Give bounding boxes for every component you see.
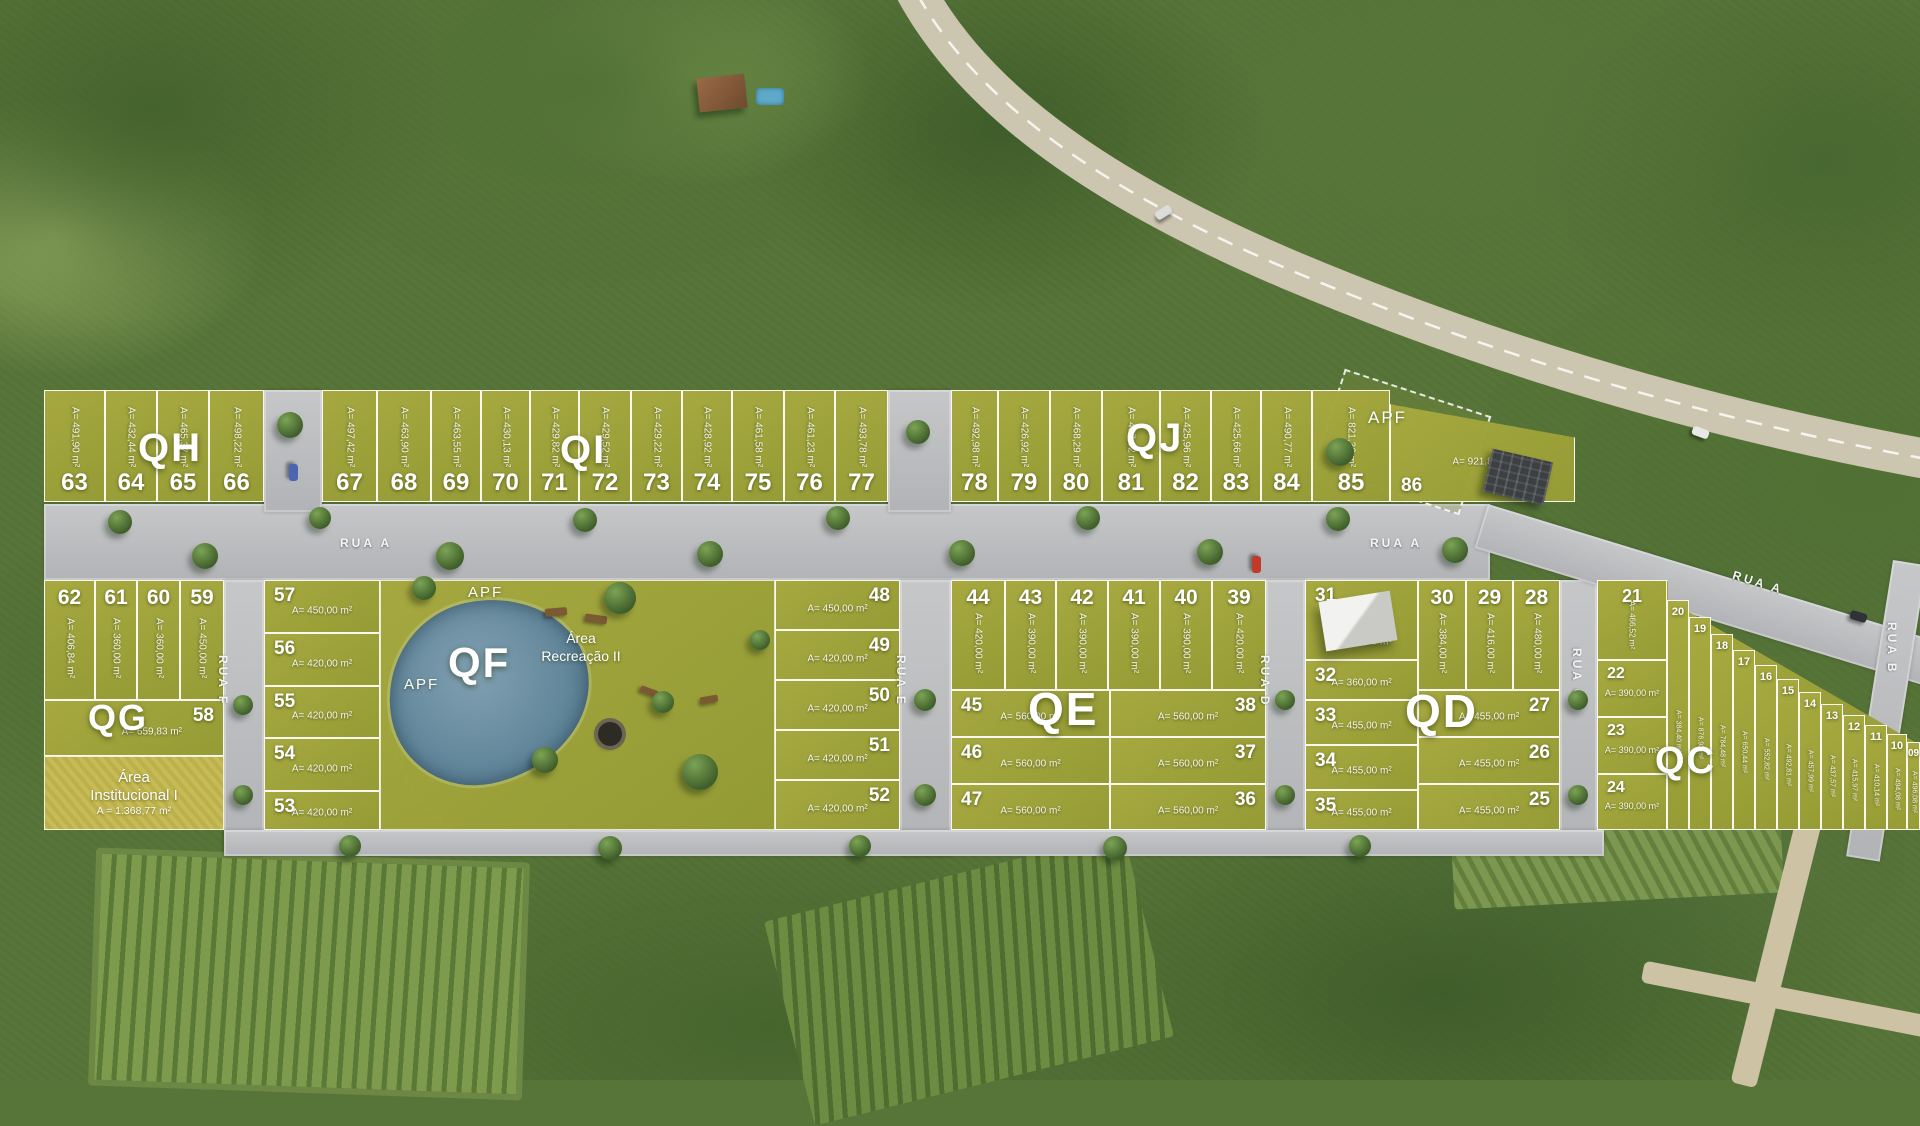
lot-17-area: A= 650,44 m²	[1741, 731, 1748, 773]
lot-54: 54A= 420,00 m²	[264, 738, 380, 791]
lot-69-number: 69	[443, 471, 470, 495]
lot-26-number: 26	[1529, 743, 1550, 762]
lot-76-number: 76	[796, 471, 823, 495]
fire-pit	[598, 722, 622, 746]
road-rua-d-road	[1266, 580, 1305, 856]
lot-44: 44A= 420,00 m²	[951, 580, 1005, 690]
lot-23-area: A= 390,00 m²	[1605, 745, 1659, 755]
lot-75: 75A= 461,58 m²	[732, 390, 784, 502]
lot-21-area: A= 466,52 m²	[1628, 601, 1637, 649]
tree	[914, 784, 936, 806]
lot-09: 09A= 496,08 m²	[1907, 742, 1920, 830]
block-label-qd: QD	[1405, 688, 1478, 734]
lot-22-number: 22	[1607, 666, 1625, 682]
lot-70-area: A= 430,13 m²	[500, 407, 511, 467]
lot-29: 29A= 416,00 m²	[1466, 580, 1513, 690]
tree	[339, 835, 361, 857]
street-label-rua-e: RUA E	[894, 655, 908, 707]
tree	[233, 785, 253, 805]
lot-70: 70A= 430,13 m²	[481, 390, 530, 502]
tree	[914, 689, 936, 711]
lot-83-number: 83	[1223, 471, 1250, 495]
tree	[436, 542, 464, 570]
lot-84-area: A= 490,77 m²	[1281, 407, 1292, 467]
lot-52-area: A= 420,00 m²	[807, 803, 867, 814]
lot-16-number: 16	[1760, 672, 1772, 683]
lot-63-area: A= 491,90 m²	[69, 407, 80, 467]
lot-60-number: 60	[147, 587, 170, 608]
street-label-rua-b: RUA B	[1885, 622, 1899, 675]
lot-83: 83A= 425,66 m²	[1211, 390, 1261, 502]
masterplan-aerial-map: APF APF APF Área Recreação II Área Insti…	[0, 0, 1920, 1080]
lot-11-number: 11	[1870, 732, 1882, 743]
lot-55-area: A= 420,00 m²	[292, 711, 352, 722]
tree	[1275, 785, 1295, 805]
lot-67-area: A= 497,42 m²	[344, 407, 355, 467]
block-label-qc: QC	[1655, 742, 1716, 780]
lot-10: 10A= 494,08 m²	[1887, 734, 1907, 830]
lot-79-area: A= 426,92 m²	[1019, 407, 1030, 467]
road-cross-top-1	[264, 390, 322, 512]
lot-24-area: A= 390,00 m²	[1605, 801, 1659, 811]
lot-57-area: A= 450,00 m²	[292, 605, 352, 616]
lot-11: 11A= 410,14 m²	[1865, 725, 1887, 830]
lot-84: 84A= 490,77 m²	[1261, 390, 1312, 502]
lot-78-area: A= 492,98 m²	[969, 407, 980, 467]
road-rua-c-road	[1560, 580, 1597, 856]
street-label-rua-a-1: RUA A	[340, 536, 392, 550]
lot-12-area: A= 415,97 m²	[1851, 759, 1858, 801]
lot-84-number: 84	[1273, 471, 1300, 495]
lot-27-number: 27	[1529, 696, 1550, 715]
block-label-qg: QG	[88, 700, 148, 736]
lot-14-number: 14	[1804, 699, 1816, 710]
tree	[108, 510, 132, 534]
tree	[652, 691, 674, 713]
tree	[1275, 690, 1295, 710]
lot-28-area: A= 480,00 m²	[1531, 612, 1542, 672]
tree	[573, 508, 597, 532]
lot-85-number: 85	[1338, 471, 1365, 495]
road-rua-a	[44, 504, 1490, 580]
lot-20-number: 20	[1672, 607, 1684, 618]
road-rua-f-road	[224, 580, 264, 856]
lot-35: 35A= 455,00 m²	[1305, 790, 1418, 830]
lot-79-number: 79	[1011, 471, 1038, 495]
lot-48: 48A= 450,00 m²	[775, 580, 900, 630]
lot-86-number: 86	[1401, 476, 1422, 495]
tree	[697, 541, 723, 567]
lot-58-number: 58	[193, 706, 214, 725]
lot-68: 68A= 463,90 m²	[377, 390, 431, 502]
road-bottom-road	[224, 830, 1604, 856]
lot-36-number: 36	[1235, 790, 1256, 809]
lot-38-area: A= 560,00 m²	[1158, 712, 1218, 723]
recreation-area-label: Área Recreação II	[516, 630, 646, 665]
road-cross-top-2	[888, 390, 951, 512]
institutional-area-size: A = 1.368,77 m²	[44, 805, 224, 817]
apf-label-top: APF	[1368, 408, 1407, 428]
lot-62: 62A= 406,84 m²	[44, 580, 95, 700]
lot-49: 49A= 420,00 m²	[775, 630, 900, 680]
block-label-qj: QJ	[1126, 418, 1183, 458]
lot-16-area: A= 552,82 m²	[1763, 738, 1770, 780]
lot-65-number: 65	[170, 471, 197, 495]
tree	[192, 543, 218, 569]
lot-17: 17A= 650,44 m²	[1733, 650, 1755, 830]
lot-25-area: A= 455,00 m²	[1459, 805, 1519, 816]
lot-63-number: 63	[61, 471, 88, 495]
lot-24-number: 24	[1607, 780, 1625, 796]
tree	[1349, 835, 1371, 857]
lot-70-number: 70	[492, 471, 519, 495]
lot-50: 50A= 420,00 m²	[775, 680, 900, 730]
lot-60: 60A= 360,00 m²	[137, 580, 180, 700]
lot-33: 33A= 455,00 m²	[1305, 700, 1418, 745]
lot-73-number: 73	[643, 471, 670, 495]
lot-48-number: 48	[869, 586, 890, 605]
lot-47-number: 47	[961, 790, 982, 809]
lot-74-number: 74	[694, 471, 721, 495]
lot-22: 22A= 390,00 m²	[1597, 660, 1667, 717]
street-label-rua-d: RUA D	[1258, 655, 1272, 708]
lot-61-number: 61	[104, 587, 127, 608]
lot-51-area: A= 420,00 m²	[807, 753, 867, 764]
lot-42-number: 42	[1070, 587, 1093, 608]
lot-62-number: 62	[58, 587, 81, 608]
lot-33-area: A= 455,00 m²	[1331, 720, 1391, 731]
lot-51-number: 51	[869, 736, 890, 755]
lot-17-number: 17	[1738, 657, 1750, 668]
lot-24: 24A= 390,00 m²	[1597, 774, 1667, 830]
lot-54-number: 54	[274, 744, 295, 763]
lot-12-number: 12	[1848, 722, 1860, 733]
lot-73-area: A= 429,22 m²	[651, 407, 662, 467]
lot-52-number: 52	[869, 786, 890, 805]
swimming-pool	[756, 88, 784, 105]
lot-13: 13A= 437,57 m²	[1821, 704, 1843, 830]
lot-29-area: A= 416,00 m²	[1484, 612, 1495, 672]
lot-74: 74A= 428,92 m²	[682, 390, 732, 502]
tree	[1442, 537, 1468, 563]
lot-41-area: A= 390,00 m²	[1129, 612, 1140, 672]
lot-49-area: A= 420,00 m²	[807, 653, 867, 664]
lot-19-number: 19	[1694, 624, 1706, 635]
lot-51: 51A= 420,00 m²	[775, 730, 900, 780]
lot-43: 43A= 390,00 m²	[1005, 580, 1056, 690]
lot-78: 78A= 492,98 m²	[951, 390, 998, 502]
lot-77: 77A= 493,78 m²	[835, 390, 888, 502]
lot-71-number: 71	[541, 471, 568, 495]
lot-62-area: A= 406,84 m²	[64, 618, 75, 678]
lot-56-number: 56	[274, 639, 295, 658]
lot-76: 76A= 461,23 m²	[784, 390, 835, 502]
street-label-rua-a-2: RUA A	[1370, 536, 1422, 550]
tree	[1568, 690, 1588, 710]
lot-56-area: A= 420,00 m²	[292, 658, 352, 669]
lot-42-area: A= 390,00 m²	[1077, 612, 1088, 672]
lot-78-number: 78	[961, 471, 988, 495]
block-label-qh: QH	[138, 428, 202, 468]
lot-66: 66A= 498,22 m²	[209, 390, 264, 502]
lot-60-area: A= 360,00 m²	[153, 618, 164, 678]
lot-50-number: 50	[869, 686, 890, 705]
tree	[1326, 507, 1350, 531]
lot-34-area: A= 455,00 m²	[1331, 765, 1391, 776]
lot-66-area: A= 498,22 m²	[231, 407, 242, 467]
lot-45-number: 45	[961, 696, 982, 715]
lot-14-area: A= 457,99 m²	[1807, 749, 1814, 791]
lot-64-number: 64	[118, 471, 145, 495]
lot-61-area: A= 360,00 m²	[111, 618, 122, 678]
lot-39-area: A= 420,00 m²	[1234, 612, 1245, 672]
car	[1252, 556, 1261, 573]
lot-36: 36A= 560,00 m²	[1110, 784, 1266, 830]
lot-25: 25A= 455,00 m²	[1418, 784, 1560, 830]
lot-80: 80A= 468,29 m²	[1050, 390, 1102, 502]
lot-16: 16A= 552,82 m²	[1755, 665, 1777, 830]
tree	[233, 695, 253, 715]
lot-59-number: 59	[190, 587, 213, 608]
tree	[598, 836, 622, 860]
lot-68-number: 68	[391, 471, 418, 495]
lot-32-area: A= 360,00 m²	[1331, 678, 1391, 689]
lot-39-number: 39	[1227, 587, 1250, 608]
road-rua-e-road	[900, 580, 951, 856]
tree	[1103, 836, 1127, 860]
lot-54-area: A= 420,00 m²	[292, 763, 352, 774]
lot-52: 52A= 420,00 m²	[775, 780, 900, 830]
vineyard-field-left	[88, 847, 530, 1100]
lot-40: 40A= 390,00 m²	[1160, 580, 1212, 690]
lot-82-number: 82	[1172, 471, 1199, 495]
lot-30-number: 30	[1430, 587, 1453, 608]
lot-57: 57A= 450,00 m²	[264, 580, 380, 633]
lot-41: 41A= 390,00 m²	[1108, 580, 1160, 690]
lot-75-number: 75	[745, 471, 772, 495]
tree	[682, 754, 718, 790]
lot-46-number: 46	[961, 743, 982, 762]
block-label-qe: QE	[1028, 686, 1098, 732]
lot-40-area: A= 390,00 m²	[1181, 612, 1192, 672]
lot-12: 12A= 415,97 m²	[1843, 715, 1865, 830]
tree	[309, 507, 331, 529]
lot-13-number: 13	[1826, 711, 1838, 722]
lot-15-number: 15	[1782, 686, 1794, 697]
lot-61: 61A= 360,00 m²	[95, 580, 137, 700]
lot-37: 37A= 560,00 m²	[1110, 737, 1266, 784]
lot-32: 32A= 360,00 m²	[1305, 660, 1418, 700]
lot-09-number: 09	[1908, 749, 1919, 759]
lot-28: 28A= 480,00 m²	[1513, 580, 1560, 690]
lot-75-area: A= 461,58 m²	[753, 407, 764, 467]
tree	[1568, 785, 1588, 805]
tree	[949, 540, 975, 566]
lot-18: 18A= 784,48 m²	[1711, 634, 1733, 830]
lot-10-number: 10	[1891, 741, 1903, 752]
lot-79: 79A= 426,92 m²	[998, 390, 1050, 502]
tree	[826, 506, 850, 530]
lot-55: 55A= 420,00 m²	[264, 686, 380, 738]
recreation-area-label-line2: Recreação II	[541, 648, 620, 664]
lot-23-number: 23	[1607, 723, 1625, 739]
lot-14: 14A= 457,99 m²	[1799, 692, 1821, 830]
lot-47-area: A= 560,00 m²	[1000, 805, 1060, 816]
lot-30-area: A= 384,00 m²	[1437, 612, 1448, 672]
lot-80-number: 80	[1063, 471, 1090, 495]
lot-35-area: A= 455,00 m²	[1331, 808, 1391, 819]
tree	[532, 747, 558, 773]
lot-43-area: A= 390,00 m²	[1025, 612, 1036, 672]
lot-42: 42A= 390,00 m²	[1056, 580, 1108, 690]
lot-73: 73A= 429,22 m²	[631, 390, 682, 502]
lot-46: 46A= 560,00 m²	[951, 737, 1110, 784]
lot-69: 69A= 463,55 m²	[431, 390, 481, 502]
lot-81-number: 81	[1118, 471, 1145, 495]
lot-13-area: A= 437,57 m²	[1829, 755, 1836, 797]
lot-48-area: A= 450,00 m²	[807, 603, 867, 614]
lot-76-area: A= 461,23 m²	[804, 407, 815, 467]
lot-80-area: A= 468,29 m²	[1071, 407, 1082, 467]
tree	[1197, 539, 1223, 565]
lot-57-number: 57	[274, 586, 295, 605]
lot-15-area: A= 492,81 m²	[1785, 744, 1792, 786]
lot-63: 63A= 491,90 m²	[44, 390, 105, 502]
apf-label-qf-north: APF	[468, 584, 503, 601]
lot-37-number: 37	[1235, 743, 1256, 762]
block-label-qi: QI	[560, 430, 606, 470]
lot-38: 38A= 560,00 m²	[1110, 690, 1266, 737]
block-label-qf: QF	[448, 642, 510, 684]
lot-49-number: 49	[869, 636, 890, 655]
lot-47: 47A= 560,00 m²	[951, 784, 1110, 830]
lot-25-number: 25	[1529, 790, 1550, 809]
lot-36-area: A= 560,00 m²	[1158, 805, 1218, 816]
lot-30: 30A= 384,00 m²	[1418, 580, 1466, 690]
lot-72-number: 72	[592, 471, 619, 495]
lot-15: 15A= 492,81 m²	[1777, 679, 1799, 830]
lot-26-area: A= 455,00 m²	[1459, 759, 1519, 770]
lot-53-area: A= 420,00 m²	[292, 808, 352, 819]
lot-55-number: 55	[274, 692, 295, 711]
lot-41-number: 41	[1122, 587, 1145, 608]
street-label-rua-f: RUA F	[216, 655, 230, 706]
tree	[906, 420, 930, 444]
lot-83-area: A= 425,66 m²	[1231, 407, 1242, 467]
lot-28-number: 28	[1525, 587, 1548, 608]
lot-29-number: 29	[1478, 587, 1501, 608]
institutional-area-label-line2: Institucional I	[44, 787, 224, 804]
tree	[750, 630, 770, 650]
lot-26: 26A= 455,00 m²	[1418, 737, 1560, 784]
lot-46-area: A= 560,00 m²	[1000, 759, 1060, 770]
lot-68-area: A= 463,90 m²	[399, 407, 410, 467]
lot-69-area: A= 463,55 m²	[451, 407, 462, 467]
lot-18-number: 18	[1716, 641, 1728, 652]
institutional-area-label-line1: Área	[44, 769, 224, 786]
recreation-area-label-line1: Área	[566, 630, 596, 646]
lot-10-area: A= 494,08 m²	[1894, 767, 1901, 809]
lot-43-number: 43	[1019, 587, 1042, 608]
lot-11-area: A= 410,14 m²	[1873, 764, 1880, 806]
lot-22-area: A= 390,00 m²	[1605, 688, 1659, 698]
tree	[277, 412, 303, 438]
lot-38-number: 38	[1235, 696, 1256, 715]
lot-44-number: 44	[966, 587, 989, 608]
lot-53: 53A= 420,00 m²	[264, 791, 380, 830]
institutional-area: Área Institucional I A = 1.368,77 m²	[44, 756, 224, 830]
tree	[604, 582, 636, 614]
lot-71-area: A= 429,82 m²	[549, 407, 560, 467]
lot-37-area: A= 560,00 m²	[1158, 759, 1218, 770]
lot-20: 20A= 384,40 m²	[1667, 600, 1689, 830]
lot-66-number: 66	[223, 471, 250, 495]
lot-18-area: A= 784,48 m²	[1719, 724, 1726, 766]
tree	[849, 835, 871, 857]
lot-56: 56A= 420,00 m²	[264, 633, 380, 686]
lot-64-area: A= 432,44 m²	[126, 407, 137, 467]
tree	[1326, 438, 1354, 466]
lot-09-area: A= 496,08 m²	[1910, 771, 1917, 813]
lot-77-area: A= 493,78 m²	[856, 407, 867, 467]
lot-50-area: A= 420,00 m²	[807, 703, 867, 714]
lot-59-area: A= 450,00 m²	[197, 618, 208, 678]
car	[289, 464, 298, 481]
lot-67-number: 67	[336, 471, 363, 495]
tree	[1076, 506, 1100, 530]
lot-34: 34A= 455,00 m²	[1305, 745, 1418, 790]
lot-77-number: 77	[848, 471, 875, 495]
lot-44-area: A= 420,00 m²	[973, 612, 984, 672]
farmhouse-roof	[696, 74, 747, 113]
lot-67: 67A= 497,42 m²	[322, 390, 377, 502]
lot-40-number: 40	[1174, 587, 1197, 608]
lot-19: 19A= 876,93 m²	[1689, 617, 1711, 830]
tree	[412, 576, 436, 600]
lot-74-area: A= 428,92 m²	[702, 407, 713, 467]
apf-label-qf-south: APF	[404, 676, 439, 693]
lot-21: 21A= 466,52 m²	[1597, 580, 1667, 660]
